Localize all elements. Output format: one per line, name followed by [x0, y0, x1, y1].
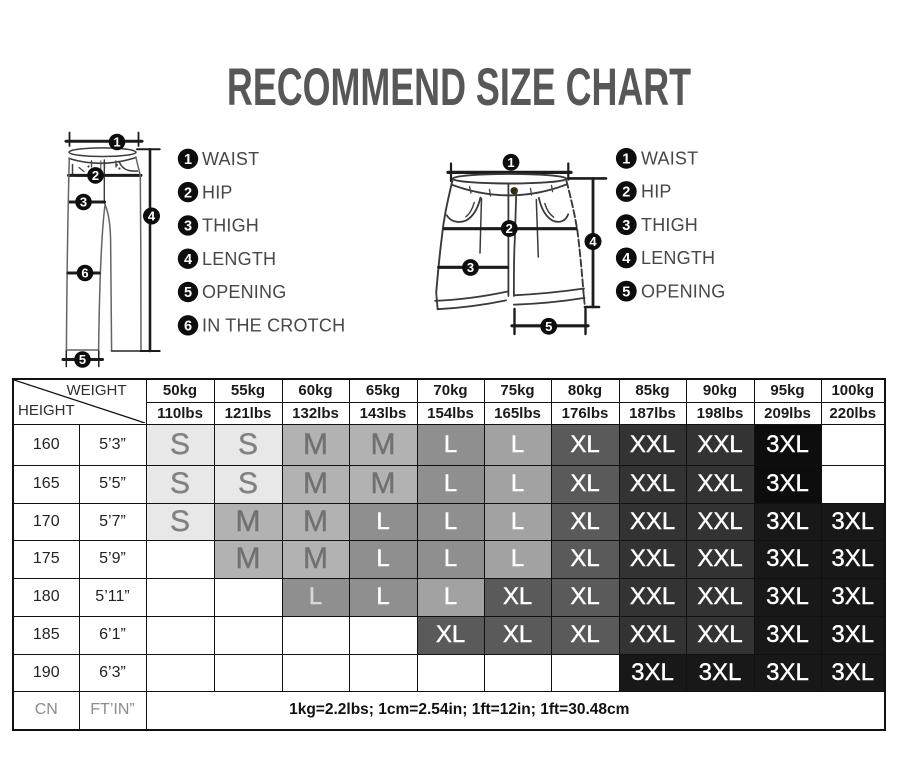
svg-text:WAIST: WAIST — [202, 149, 259, 169]
svg-text:OPENING: OPENING — [641, 281, 725, 301]
svg-text:5: 5 — [622, 284, 630, 300]
svg-text:LENGTH: LENGTH — [202, 249, 276, 269]
svg-text:4: 4 — [148, 209, 156, 224]
svg-text:2: 2 — [184, 185, 192, 201]
svg-text:3: 3 — [184, 219, 192, 235]
svg-text:OPENING: OPENING — [202, 282, 286, 302]
svg-text:THIGH: THIGH — [641, 215, 698, 235]
svg-text:5: 5 — [545, 319, 552, 334]
svg-text:6: 6 — [184, 319, 192, 335]
svg-text:5: 5 — [79, 352, 86, 367]
svg-text:2: 2 — [622, 185, 630, 201]
svg-text:4: 4 — [622, 251, 630, 267]
svg-text:THIGH: THIGH — [202, 216, 259, 236]
svg-text:WAIST: WAIST — [641, 149, 698, 169]
svg-text:3: 3 — [467, 260, 474, 275]
svg-text:2: 2 — [92, 168, 99, 183]
svg-text:5: 5 — [184, 285, 192, 301]
svg-text:4: 4 — [184, 252, 192, 268]
svg-text:1: 1 — [507, 155, 514, 170]
svg-text:HIP: HIP — [202, 182, 233, 202]
svg-text:1: 1 — [113, 135, 120, 150]
svg-text:3: 3 — [622, 218, 630, 234]
svg-text:HIP: HIP — [641, 182, 672, 202]
svg-text:1: 1 — [184, 152, 192, 168]
svg-text:6: 6 — [81, 266, 88, 281]
svg-text:2: 2 — [506, 221, 513, 236]
svg-text:3: 3 — [80, 195, 87, 210]
svg-text:LENGTH: LENGTH — [641, 248, 715, 268]
svg-text:IN THE CROTCH: IN THE CROTCH — [202, 316, 345, 336]
svg-text:4: 4 — [589, 234, 597, 249]
svg-text:1: 1 — [622, 152, 630, 168]
